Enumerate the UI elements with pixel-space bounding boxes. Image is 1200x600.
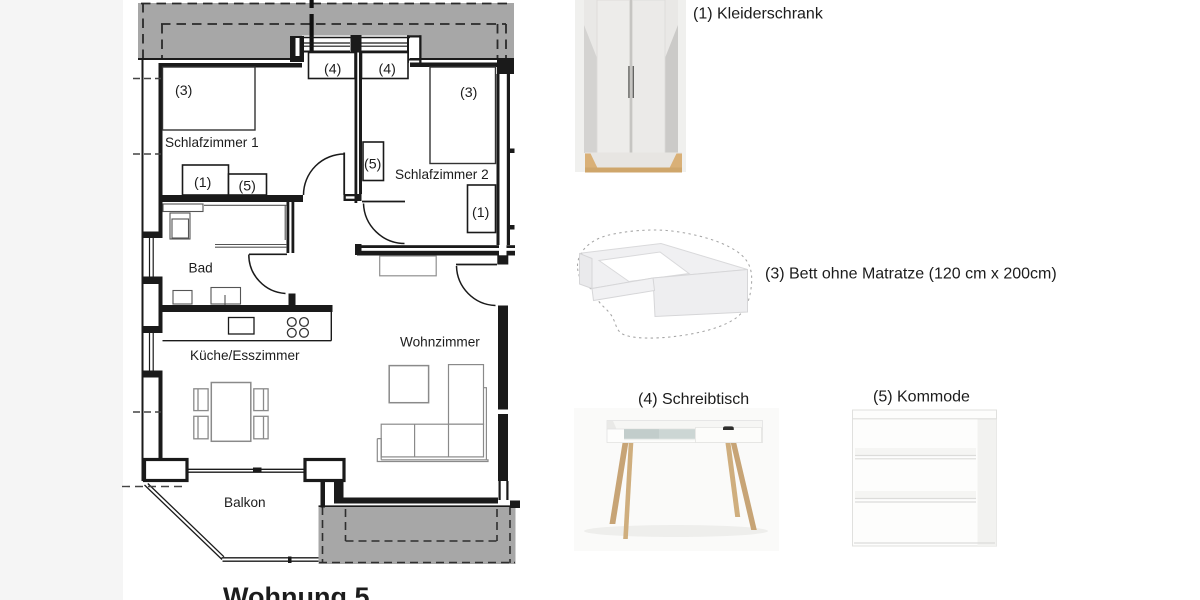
svg-text:(5) Kommode: (5) Kommode [873, 389, 970, 406]
svg-text:(4) Schreibtisch: (4) Schreibtisch [638, 391, 749, 408]
svg-text:(5): (5) [239, 179, 256, 195]
svg-text:(4): (4) [324, 62, 341, 78]
svg-text:(1) Kleiderschrank: (1) Kleiderschrank [693, 6, 824, 23]
svg-text:(3): (3) [175, 83, 192, 99]
svg-text:(1): (1) [194, 175, 211, 191]
svg-text:Schlafzimmer 2: Schlafzimmer 2 [395, 167, 489, 182]
svg-text:Bad: Bad [189, 261, 213, 276]
svg-text:Schlafzimmer 1: Schlafzimmer 1 [165, 135, 259, 150]
svg-text:(3) Bett ohne Matratze (120 cm: (3) Bett ohne Matratze (120 cm x 200cm) [765, 266, 1057, 283]
svg-text:Balkon: Balkon [224, 495, 266, 510]
svg-text:Küche/Esszimmer: Küche/Esszimmer [190, 348, 300, 363]
svg-text:(1): (1) [472, 205, 489, 221]
svg-text:(4): (4) [379, 62, 396, 78]
svg-text:(5): (5) [364, 157, 381, 173]
svg-text:(3): (3) [460, 85, 477, 101]
svg-text:Wohnung 5: Wohnung 5 [223, 582, 369, 600]
svg-text:Wohnzimmer: Wohnzimmer [400, 335, 480, 350]
